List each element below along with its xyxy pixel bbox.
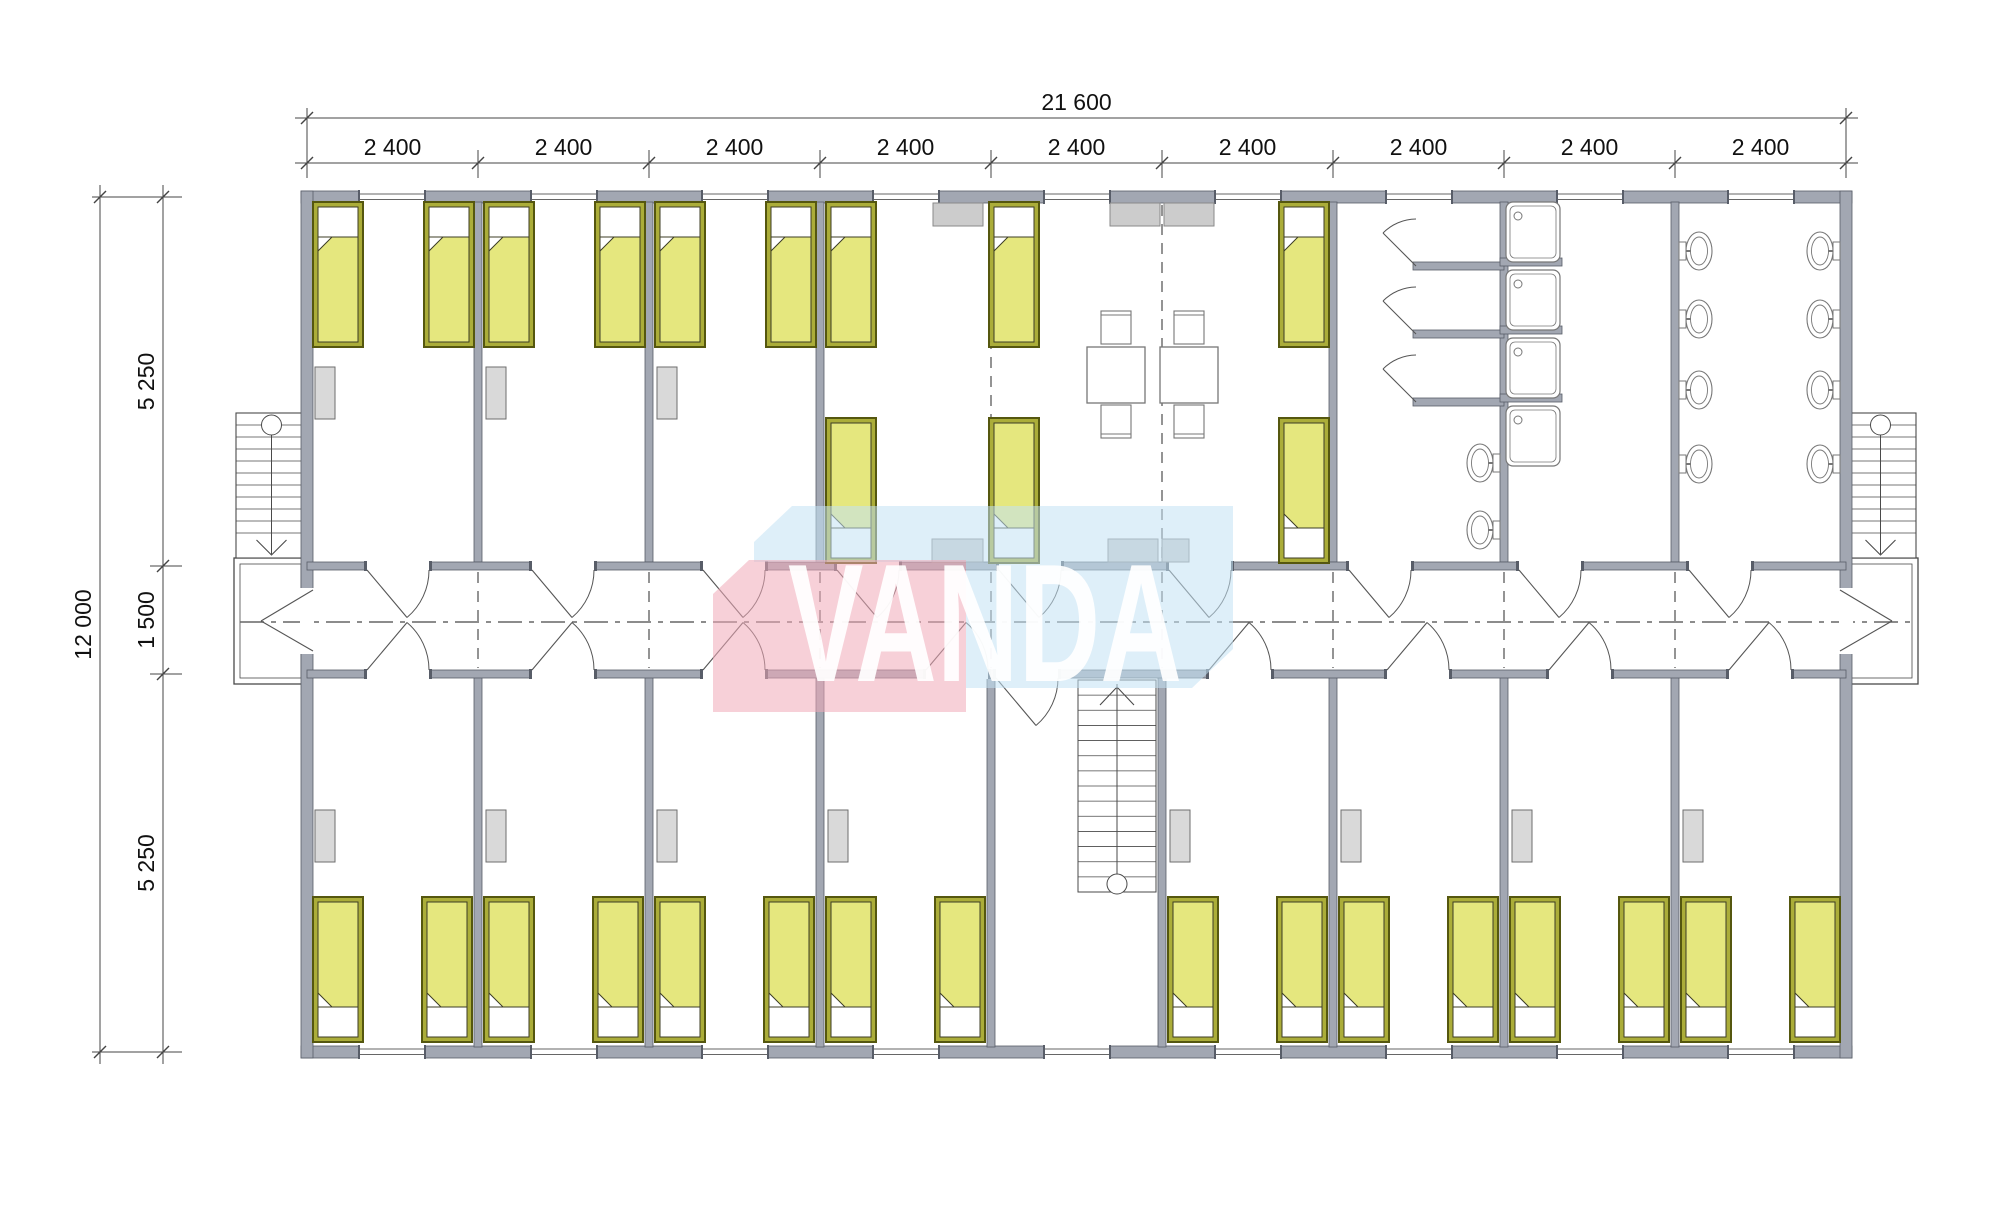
wardrobe <box>657 367 677 419</box>
floor-plan-svg: 21 6002 4002 4002 4002 4002 4002 4002 40… <box>0 0 2000 1219</box>
dimension-label: 2 400 <box>877 134 935 160</box>
cabinet <box>1110 203 1160 226</box>
door-swing <box>532 623 594 671</box>
toilet <box>1807 371 1840 409</box>
window <box>530 190 598 204</box>
window <box>1385 190 1453 204</box>
dimension-label: 2 400 <box>1561 134 1619 160</box>
window <box>1727 190 1795 204</box>
toilet <box>1807 232 1840 270</box>
window <box>1556 1045 1624 1059</box>
wardrobe <box>315 367 335 419</box>
toilet <box>1807 300 1840 338</box>
bed <box>422 897 472 1042</box>
chair <box>1174 405 1204 438</box>
dimension-label: 12 000 <box>70 589 96 659</box>
bed <box>1339 897 1389 1042</box>
window <box>1214 190 1282 204</box>
door-swing <box>1387 623 1449 671</box>
chair <box>1174 311 1204 344</box>
wardrobe <box>486 810 506 862</box>
shower-door-swing <box>1383 355 1416 402</box>
bed <box>1790 897 1840 1042</box>
dimension-label: 2 400 <box>1390 134 1448 160</box>
cabinet <box>1164 203 1214 226</box>
exterior-staircase <box>236 413 307 558</box>
bathroom-fixtures <box>1467 202 1840 549</box>
bed <box>935 897 985 1042</box>
window <box>872 1045 940 1059</box>
wardrobe <box>1683 810 1703 862</box>
entry-porch <box>1845 558 1918 684</box>
door-swing <box>1549 623 1611 671</box>
window <box>701 190 769 204</box>
dimension-label: 2 400 <box>364 134 422 160</box>
door-swing <box>1349 570 1411 618</box>
bed <box>484 202 534 347</box>
bed <box>655 897 705 1042</box>
window <box>1214 1045 1282 1059</box>
window <box>530 1045 598 1059</box>
bed <box>1681 897 1731 1042</box>
dimension-label: 1 500 <box>133 591 159 649</box>
chair <box>1101 311 1131 344</box>
wardrobe <box>1512 810 1532 862</box>
dimension-label: 2 400 <box>1219 134 1277 160</box>
window <box>358 190 426 204</box>
vanda-watermark: VANDA <box>713 506 1233 717</box>
window <box>701 1045 769 1059</box>
door-swing <box>1689 570 1751 618</box>
dimension-label: 5 250 <box>133 353 159 411</box>
cabinet <box>933 203 983 226</box>
window <box>1043 190 1111 204</box>
shower-tray <box>1506 270 1560 330</box>
wardrobe <box>828 810 848 862</box>
bed <box>1279 418 1329 563</box>
wardrobe <box>1170 810 1190 862</box>
toilet <box>1467 511 1500 549</box>
bed <box>826 202 876 347</box>
toilet <box>1679 232 1712 270</box>
bed <box>424 202 474 347</box>
toilet <box>1807 445 1840 483</box>
window <box>1043 1045 1111 1059</box>
bed <box>593 897 643 1042</box>
bed <box>1279 202 1329 347</box>
watermark-logo-text: VANDA <box>788 529 1182 717</box>
door-swing <box>1729 623 1791 671</box>
window <box>1385 1045 1453 1059</box>
shower-door-swing <box>1383 219 1416 266</box>
wardrobe <box>315 810 335 862</box>
exterior-staircase <box>1845 413 1916 558</box>
toilet <box>1679 371 1712 409</box>
wardrobe <box>1341 810 1361 862</box>
bed <box>1448 897 1498 1042</box>
bed <box>826 897 876 1042</box>
bed <box>766 202 816 347</box>
bed <box>313 897 363 1042</box>
window <box>1727 1045 1795 1059</box>
bed <box>1510 897 1560 1042</box>
floor-plan-page: 21 6002 4002 4002 4002 4002 4002 4002 40… <box>0 0 2000 1219</box>
window <box>358 1045 426 1059</box>
toilet <box>1679 445 1712 483</box>
bed <box>989 202 1039 347</box>
shower-door-swing <box>1383 287 1416 334</box>
door-swing <box>1519 570 1581 618</box>
shower-tray <box>1506 338 1560 398</box>
window <box>872 190 940 204</box>
dimension-label: 2 400 <box>535 134 593 160</box>
wardrobe <box>486 367 506 419</box>
bed <box>484 897 534 1042</box>
dimension-label: 2 400 <box>1048 134 1106 160</box>
dimension-label: 2 400 <box>1732 134 1790 160</box>
bed <box>655 202 705 347</box>
window <box>1556 190 1624 204</box>
table <box>1087 347 1145 403</box>
door-swing <box>532 570 594 618</box>
bed <box>1619 897 1669 1042</box>
chair <box>1101 405 1131 438</box>
bed <box>313 202 363 347</box>
door-swing <box>367 570 429 618</box>
door-swing <box>367 623 429 671</box>
dimension-label: 21 600 <box>1041 89 1111 115</box>
shower-tray <box>1506 202 1560 262</box>
bed <box>1277 897 1327 1042</box>
dimension-label: 5 250 <box>133 834 159 892</box>
toilet <box>1467 444 1500 482</box>
dimension-label: 2 400 <box>706 134 764 160</box>
shower-tray <box>1506 406 1560 466</box>
bed <box>1168 897 1218 1042</box>
table <box>1160 347 1218 403</box>
entry-porch <box>234 558 307 684</box>
bed <box>764 897 814 1042</box>
bed <box>595 202 645 347</box>
toilet <box>1679 300 1712 338</box>
wardrobe <box>657 810 677 862</box>
